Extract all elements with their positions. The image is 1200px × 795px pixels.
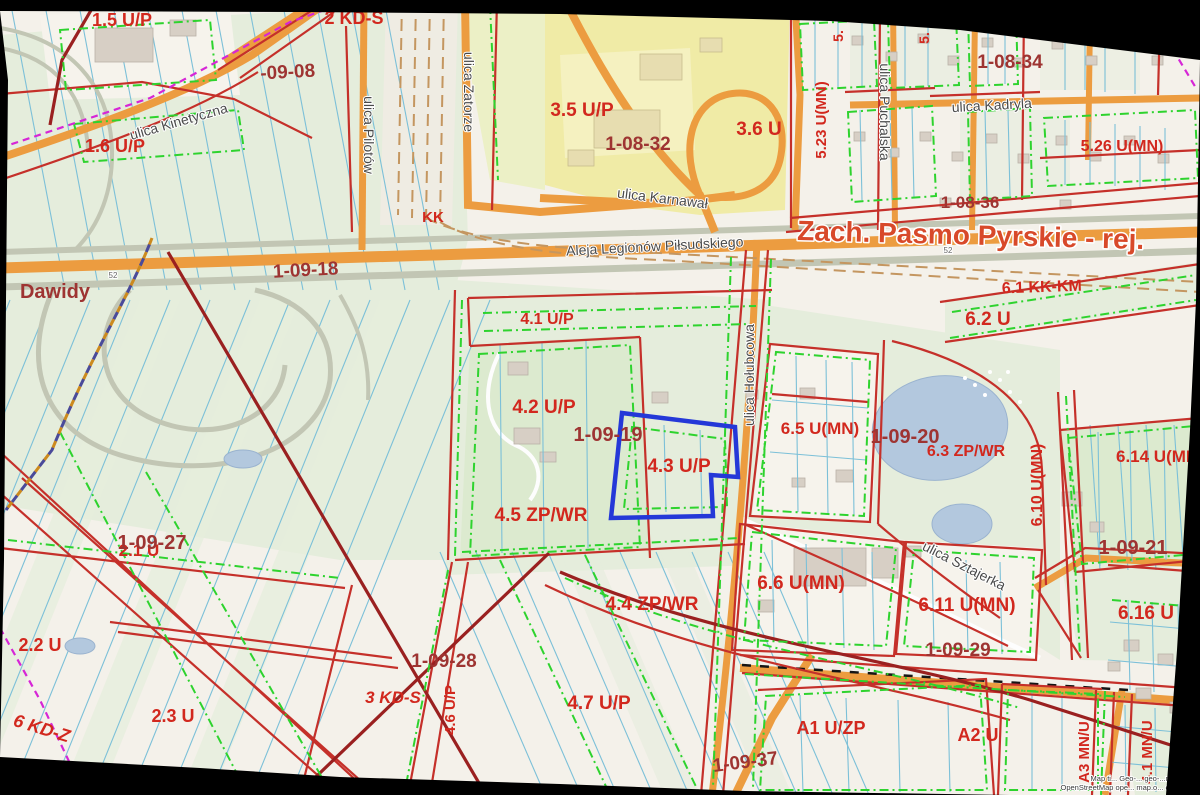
zone-label-4-5-zp-wr: 4.5 ZP/WR [495, 505, 588, 526]
zone-label-6-10-u-mn: 6.10 U(MN) [1029, 444, 1046, 527]
zone-label-4-7-u-p: 4.7 U/P [567, 693, 631, 714]
zoning-map-canvas[interactable]: 1.5 U/P2 KD-S1.6 U/P3.5 U/P3.6 U5.5.5.23… [0, 0, 1200, 795]
area-code-label-09-08: -09-08 [260, 61, 316, 85]
zone-label-6-11-u-mn: 6.11 U(MN) [918, 595, 1015, 616]
area-code-label-1-09-28: 1-09-28 [411, 651, 477, 672]
zone-label-6-5-u-mn: 6.5 U(MN) [781, 419, 859, 438]
zone-label-1-5-u-p: 1.5 U/P [92, 10, 152, 30]
zone-label-6-14-u-mn: 6.14 U(MN) [1116, 447, 1200, 466]
zone-label-a1-u-zp: A1 U/ZP [796, 718, 865, 738]
zone-label-3-6-u: 3.6 U [736, 119, 781, 140]
area-code-label-1-09-27: 1-09-27 [118, 532, 187, 554]
area-code-label-1-08-34: 1-08-34 [977, 52, 1043, 73]
street-label-ulica-pilot-w: ulica Pilotów [361, 96, 377, 175]
zone-label-2-2-u: 2.2 U [18, 635, 61, 655]
area-code-label-1-09-21: 1-09-21 [1099, 537, 1168, 559]
area-code-label-1-09-29: 1-09-29 [925, 640, 991, 661]
zone-label-4-3-u-p: 4.3 U/P [647, 456, 711, 477]
zone-label-4-6-u-p: 4.6 U/P [442, 685, 459, 735]
zone-label-6-16-u: 6.16 U [1118, 603, 1174, 624]
zone-label-5: 5. [830, 30, 846, 42]
map-viewport[interactable]: 1.5 U/P2 KD-S1.6 U/P3.5 U/P3.6 U5.5.5.23… [0, 0, 1200, 795]
zone-label-4-4-zp-wr: 4.4 ZP/WR [606, 594, 699, 615]
zone-label-6-6-u-mn: 6.6 U(MN) [757, 573, 845, 594]
area-code-label-1-09-18: 1-09-18 [272, 258, 339, 282]
road-number-52: 52 [109, 271, 118, 280]
street-label-ulica-ho-ubcowa: ulica Hołubcowa [741, 324, 757, 426]
area-code-label-1-09-19: 1-09-19 [574, 424, 643, 446]
zone-label-4-1-u-p: 4.1 U/P [520, 311, 574, 328]
area-code-label-1-09-20: 1-09-20 [871, 426, 940, 448]
zone-label-5-23-u-mn: 5.23 U(MN) [813, 81, 830, 159]
area-code-label-1-08-32: 1-08-32 [605, 134, 671, 155]
area-code-label-1-08-36: 1-08-36 [941, 193, 1000, 212]
zone-label-6-1-kk-km: 6.1 KK-KM [1002, 278, 1083, 298]
zone-label-5: 5. [916, 32, 932, 44]
zone-label-3-5-u-p: 3.5 U/P [550, 100, 614, 121]
place-label-dawidy: Dawidy [20, 281, 91, 303]
zone-label-3-kd-s: 3 KD-S [365, 688, 421, 707]
street-label-ulica-puchalska: ulica Puchalska [877, 63, 893, 160]
zone-label-6-2-u: 6.2 U [965, 309, 1010, 330]
zone-label-5-26-u-mn: 5.26 U(MN) [1081, 138, 1164, 155]
zone-label-kk: KK [422, 209, 444, 226]
street-label-ulica-zatorze: ulica Zatorze [461, 52, 477, 132]
zone-label-2-3-u: 2.3 U [151, 706, 194, 726]
zone-label-a2-u: A2 U [957, 725, 998, 745]
zone-label-4-2-u-p: 4.2 U/P [512, 397, 576, 418]
